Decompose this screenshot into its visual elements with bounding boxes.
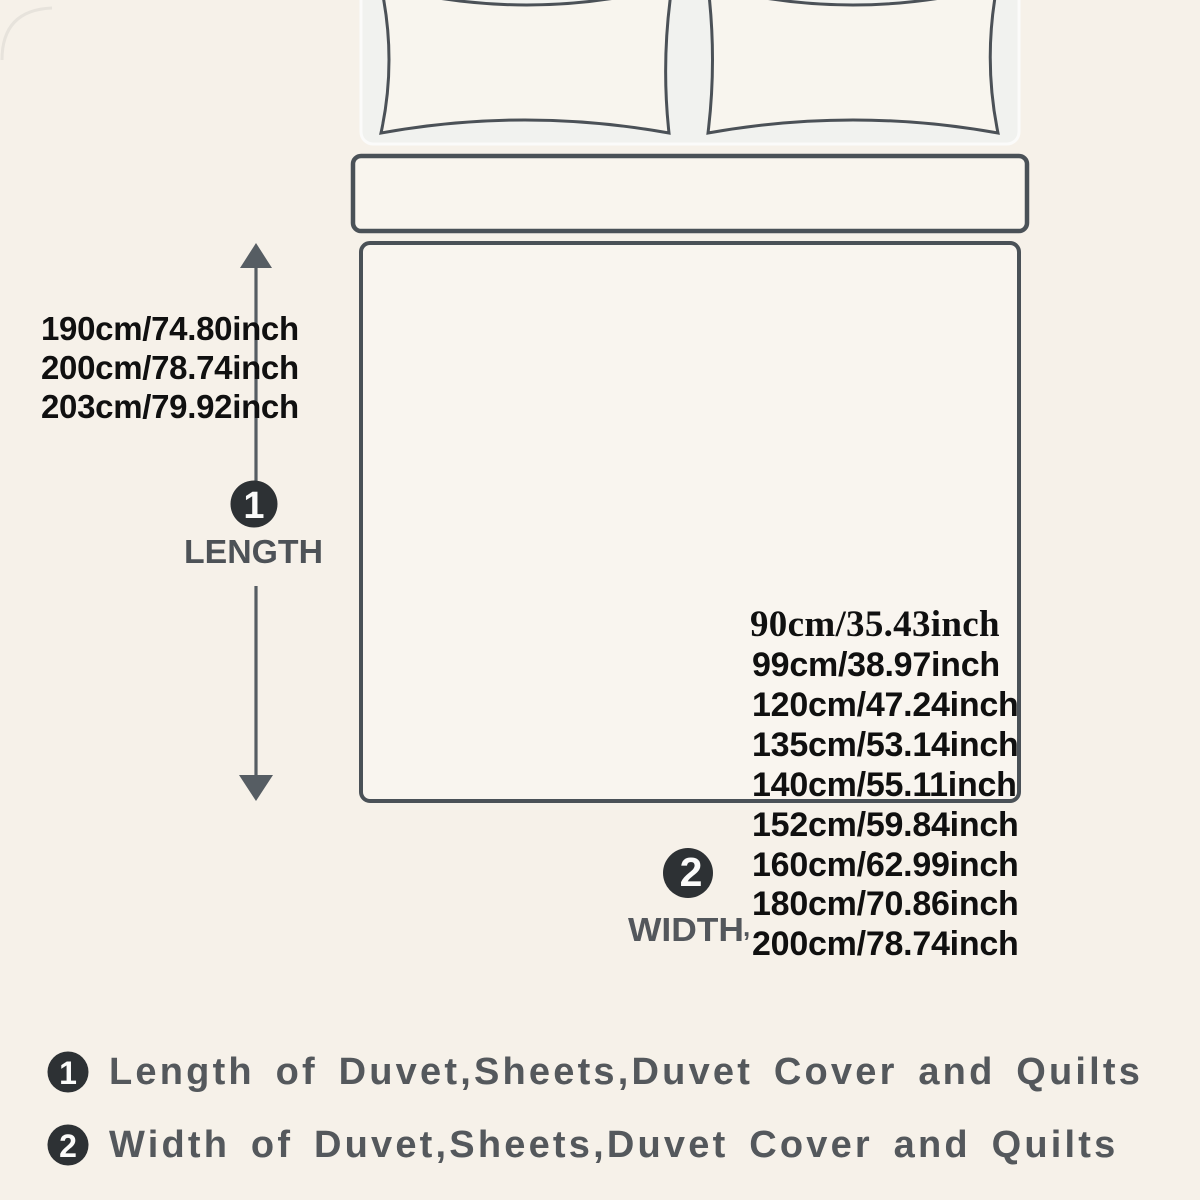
svg-text:LENGTH: LENGTH (184, 533, 323, 570)
svg-text:,: , (743, 912, 750, 942)
svg-text:1: 1 (59, 1055, 77, 1091)
svg-text:WIDTH: WIDTH (628, 911, 744, 948)
svg-text:2: 2 (680, 849, 703, 895)
svg-text:2: 2 (59, 1128, 77, 1164)
